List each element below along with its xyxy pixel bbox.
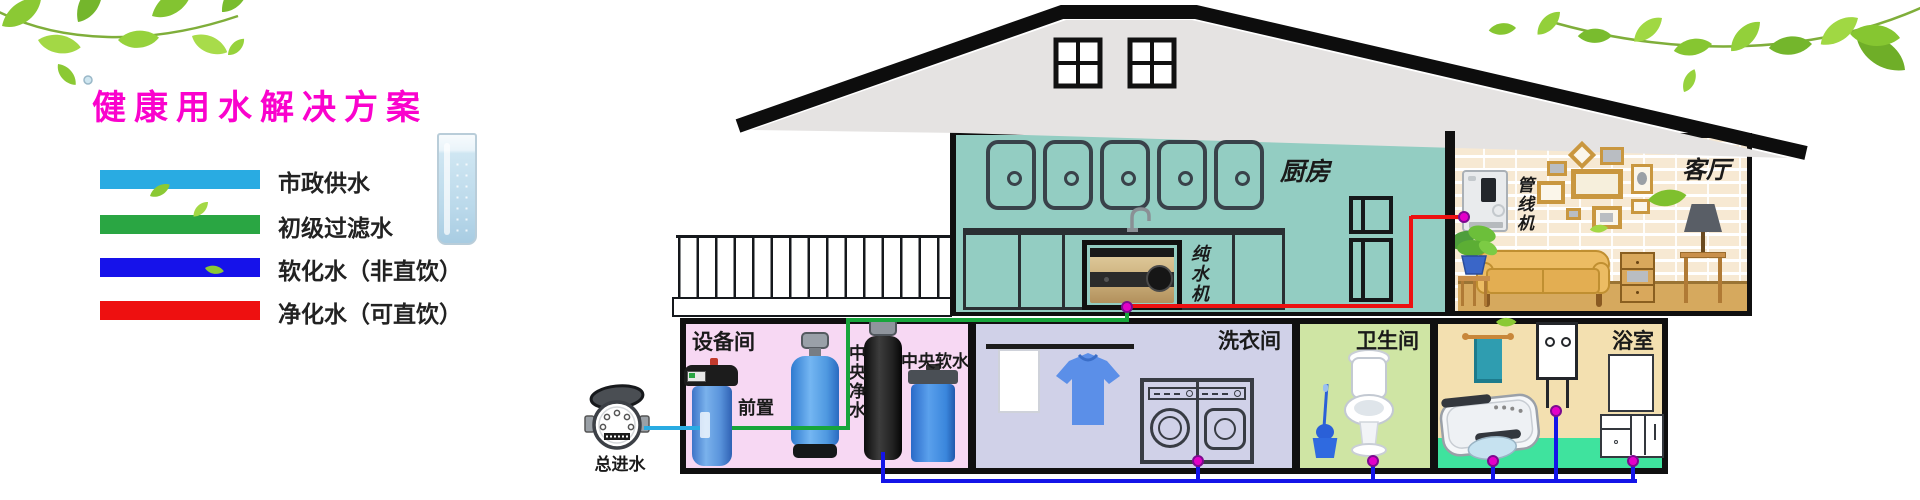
fridge-handle [1361,200,1365,230]
salt-tank-body [911,384,955,462]
junction-dot-pure-water-machine [1121,301,1133,313]
vanity-divider [1644,416,1646,455]
legend-label-municipal: 市政供水 [278,164,370,198]
towel [1474,339,1502,383]
pwm-indicator [1104,277,1109,282]
junction-dot-toilet [1367,455,1379,467]
kitchen-living-wall [1445,131,1455,316]
washer-dashes [1154,393,1182,395]
pure-water-machine-label: 纯水机 [1186,244,1212,310]
cabinet-knob [1121,171,1136,186]
plm-logo [1468,176,1476,181]
drawer-chest [1620,252,1655,303]
cabinet-door [1157,140,1207,210]
picture-frame [1566,208,1581,220]
frame-oval [1637,172,1647,185]
picture-frame [1631,164,1653,194]
picture-frame [1592,206,1622,229]
pipe-softened [1554,410,1558,481]
base-cabinet-divider [1062,235,1065,307]
sofa-cushion-line [1542,270,1544,292]
fence-bars [678,237,950,298]
leaf-cluster-top-left [0,0,257,89]
roof-fill [752,20,1788,158]
floor-lamp [1678,204,1728,304]
prefilter-device [684,358,740,468]
legend-label-softened: 软化水（非直饮） [278,252,462,286]
central-purifier-tank [791,332,839,460]
legend: 市政供水 初级过滤水 软化水（非直饮） 净化水（可直饮） [100,168,480,328]
purifier-base [793,444,837,458]
heater-dial [1545,337,1555,347]
fridge-body [1349,238,1393,302]
washer-knob-icon [1186,390,1193,397]
purifier-valve [801,332,829,349]
pipe-filtered [846,318,1129,322]
pipeline-machine-label: 管线机 [1511,176,1536,238]
towel-rod-end [1462,333,1469,340]
fridge-handle [1361,242,1365,298]
base-cabinet-divider [1018,235,1021,307]
wall-laundry-toilet [1292,318,1300,474]
legend-swatch-municipal [100,170,260,189]
purifier-body [791,356,839,446]
picture-frame [1631,199,1650,214]
central-softener-tank [864,318,902,460]
towel-rack [1464,332,1512,386]
prefilter-display [687,371,706,382]
faucet-icon [1122,204,1156,232]
dryer-knob-icon [1234,390,1241,397]
legend-swatch-softened [100,258,260,277]
picture-frame [1600,147,1624,165]
legend-label-purified: 净化水（可直饮） [278,295,462,329]
towel-rod-end [1507,333,1514,340]
legend-label-filtered: 初级过滤水 [278,209,393,243]
dryer-door-inner [1214,418,1236,440]
junction-dot-bathtub [1487,455,1499,467]
frame-inner [1600,213,1613,222]
pipe-purified [1411,215,1464,219]
prefilter-label: 前置 [738,394,774,420]
sofa-leg [1596,294,1602,307]
pipe-municipal [644,426,700,430]
legend-row-softened: 软化水（非直饮） [100,256,480,282]
junction-dot-washer [1192,455,1204,467]
bathroom-label: 浴室 [1612,325,1654,355]
washer-dryer-divider [1196,382,1199,460]
picture-frame [1571,169,1623,199]
chest-knob [1636,291,1639,294]
bathroom-mirror [1608,354,1654,412]
picture-frame [1547,161,1567,176]
hanging-sheet [998,349,1040,413]
washer-dryer-unit [1140,378,1254,464]
branch [0,10,238,37]
glass-highlight [444,143,450,235]
pipe-softened [881,479,1637,483]
water-glass-image [437,133,477,245]
cabinet-door [1214,140,1264,210]
cabinet-knob [1178,171,1193,186]
water-droplet-icon [84,76,92,84]
page-title: 健康用水解决方案 [92,80,428,129]
lamp-pole [1701,232,1705,254]
glass-bubbles [453,159,473,239]
toilet-brush [1310,384,1340,460]
main-inlet-label: 总进水 [588,450,652,475]
wall-equipment-laundry [968,318,976,474]
cabinet-knob [1064,171,1079,186]
hanging-tshirt [1052,349,1124,429]
pipe-filtered [732,426,850,430]
base-cabinet-divider [1232,235,1235,307]
lamp-shade [1684,204,1722,232]
plm-screen [1481,178,1496,202]
chest-drawer-line [1622,268,1653,270]
chest-drawer [1627,271,1648,282]
fridge-freezer [1349,196,1393,234]
vanity-divider [1630,416,1632,455]
cabinet-knob [1007,171,1022,186]
brush-cup [1311,438,1339,458]
bathtub [1438,386,1544,466]
lamp-table-leg [1718,258,1722,303]
heater-pipe [1546,380,1549,408]
vanity-knob [1614,440,1618,444]
fence-top-rail [676,235,950,238]
pure-water-machine [1090,248,1174,303]
softener-body [864,336,902,460]
chest-knob [1636,261,1639,264]
junction-dot-vanity [1627,455,1639,467]
legend-swatch-purified [100,301,260,320]
wall-toilet-bathroom [1430,318,1438,474]
legend-row-purified: 净化水（可直饮） [100,299,480,325]
vanity-drawer-line [1602,428,1630,430]
vanity-handle [1654,424,1656,440]
living-room-label: 客厅 [1682,150,1730,185]
purifier-valve-stem [809,348,821,356]
banner-canvas: 健康用水解决方案 市政供水 初级过滤水 软化水（非直饮） 净化水（可直饮） [0,0,1920,500]
heater-pipe [1566,380,1569,408]
salt-tank [908,364,958,462]
central-softener-label: 中央软水 [901,347,969,372]
water-heater [1536,322,1578,380]
laundry-room-label: 洗衣间 [1218,325,1281,355]
pipe-filtered [846,318,850,430]
prefilter-sticker [700,412,710,438]
washer-door-inner [1158,416,1182,440]
water-meter [583,384,651,450]
pipe-softened [881,452,885,482]
plm-fan [1492,204,1505,217]
pwm-top-bar [1090,248,1174,257]
cabinet-door [1100,140,1150,210]
legend-swatch-filtered [100,215,260,234]
kitchen-label: 厨房 [1280,152,1330,188]
brush-head [1316,424,1334,440]
brush-tip [1323,384,1328,392]
prefilter-display-green [689,373,695,378]
pwm-dial [1146,265,1173,292]
legend-row-municipal: 市政供水 [100,168,480,194]
fence-base-rail [672,297,952,317]
lamp-table-leg [1684,258,1688,303]
attic-window-right [1130,40,1174,86]
junction-dot-heater [1550,405,1562,417]
heater-dial [1561,337,1571,347]
legend-row-filtered: 初级过滤水 [100,213,480,239]
pipe-purified [1409,216,1413,308]
cabinet-knob [1235,171,1250,186]
cabinet-door [986,140,1036,210]
attic-window-left [1056,40,1100,86]
chest-drawer-line [1622,284,1653,286]
cabinet-door [1043,140,1093,210]
dryer-dashes [1202,393,1230,395]
junction-dot-pipeline-machine [1458,211,1470,223]
toilet [1338,348,1400,462]
pipe-purified [1129,304,1413,308]
toilet-room-label: 卫生间 [1356,325,1419,355]
vanity-cabinet [1600,414,1664,458]
roof [730,4,1820,172]
salt-tank-lid [908,370,958,384]
picture-frame [1537,181,1565,204]
equipment-room-label: 设备间 [692,326,755,356]
